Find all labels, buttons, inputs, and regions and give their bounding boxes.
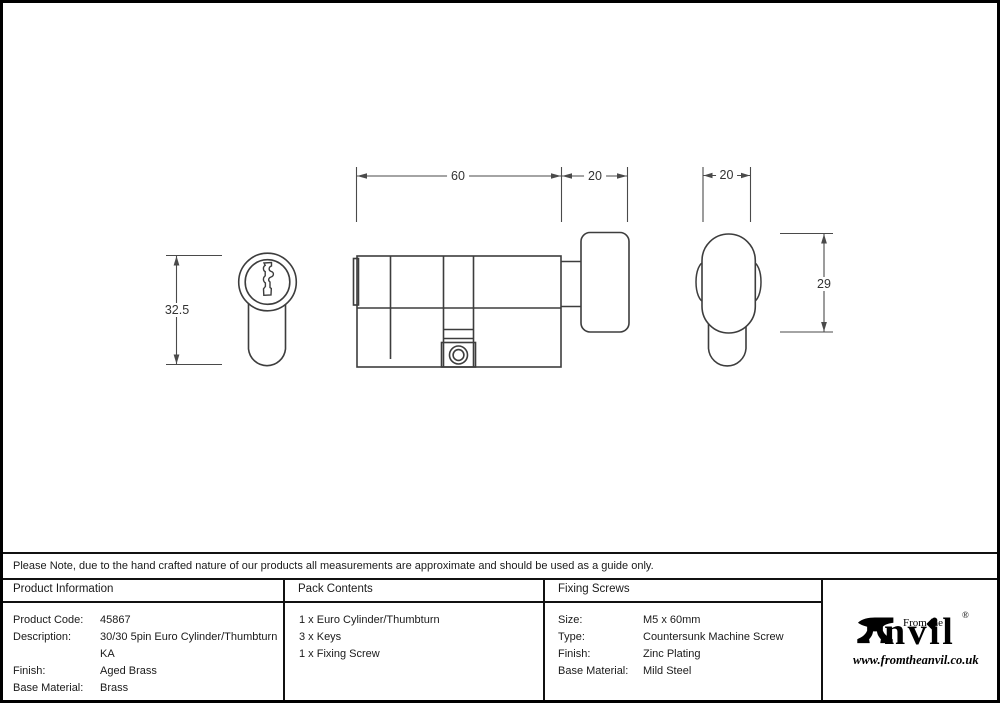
dimension-label-body-length: 60 xyxy=(447,169,469,183)
row-label: Base Material: xyxy=(13,680,100,697)
list-item: 3 x Keys xyxy=(299,629,543,646)
info-panel: Please Note, due to the hand crafted nat… xyxy=(3,552,997,700)
table-row: Finish: Zinc Plating xyxy=(558,646,821,663)
info-table: Product Information Product Code: 45867 … xyxy=(3,580,997,700)
row-label: Base Material: xyxy=(558,663,643,680)
note-bar: Please Note, due to the hand crafted nat… xyxy=(3,552,997,580)
table-row: Size: M5 x 60mm xyxy=(558,612,821,629)
fixing-screw-hole xyxy=(450,346,468,364)
table-row: Base Material: Brass xyxy=(13,680,283,697)
logo-website-text: www.fromtheanvil.co.uk xyxy=(853,653,979,668)
thumbturn-front-view xyxy=(696,234,761,366)
dimension-label-cylinder-height: 32.5 xyxy=(161,303,193,317)
row-value: M5 x 60mm xyxy=(643,612,700,629)
row-label: Type: xyxy=(558,629,643,646)
row-label: Finish: xyxy=(13,663,100,680)
cylinder-side-view xyxy=(354,233,630,368)
pack-contents-header: Pack Contents xyxy=(285,580,543,603)
row-value: Brass xyxy=(100,680,283,697)
table-row: Base Material: Mild Steel xyxy=(558,663,821,680)
row-value: Mild Steel xyxy=(643,663,691,680)
thumbturn-side xyxy=(581,233,629,333)
logo-brand-text: nvil xyxy=(884,613,955,651)
note-text: Please Note, due to the hand crafted nat… xyxy=(13,560,654,572)
row-value: 30/30 5pin Euro Cylinder/Thumbturn KA xyxy=(100,629,283,663)
list-item: 1 x Euro Cylinder/Thumbturn xyxy=(299,612,543,629)
table-row: Description: 30/30 5pin Euro Cylinder/Th… xyxy=(13,629,283,663)
table-row: Product Code: 45867 xyxy=(13,612,283,629)
product-information-column: Product Information Product Code: 45867 … xyxy=(3,580,285,700)
row-label: Description: xyxy=(13,629,100,646)
dimension-label-thumbturn-height: 29 xyxy=(813,277,835,291)
dimension-label-thumbturn-length: 20 xyxy=(584,169,606,183)
row-value: 45867 xyxy=(100,612,283,629)
pack-contents-column: Pack Contents 1 x Euro Cylinder/Thumbtur… xyxy=(285,580,545,700)
fixing-screws-header: Fixing Screws xyxy=(545,580,821,603)
row-value: Countersunk Machine Screw xyxy=(643,629,784,646)
row-label: Product Code: xyxy=(13,612,100,629)
product-information-header: Product Information xyxy=(3,580,283,603)
row-value: Zinc Plating xyxy=(643,646,700,663)
fixing-screws-column: Fixing Screws Size: M5 x 60mm Type: Coun… xyxy=(545,580,823,700)
thumbturn-knob xyxy=(702,234,755,333)
list-item: 1 x Fixing Screw xyxy=(299,646,543,663)
cylinder-front-view xyxy=(239,253,297,365)
table-row: Finish: Aged Brass xyxy=(13,663,283,680)
row-label: Size: xyxy=(558,612,643,629)
table-row: Type: Countersunk Machine Screw xyxy=(558,629,821,646)
registered-trademark-symbol: ® xyxy=(962,610,969,620)
row-value: Aged Brass xyxy=(100,663,283,680)
dimension-label-thumbturn-width: 20 xyxy=(716,168,738,182)
spec-sheet: 60 20 20 32.5 29 Please Note, due to the… xyxy=(0,0,1000,703)
anvil-logo: From the nvil ® www.fromtheanvil.co.uk xyxy=(823,580,997,700)
row-label: Finish: xyxy=(558,646,643,663)
